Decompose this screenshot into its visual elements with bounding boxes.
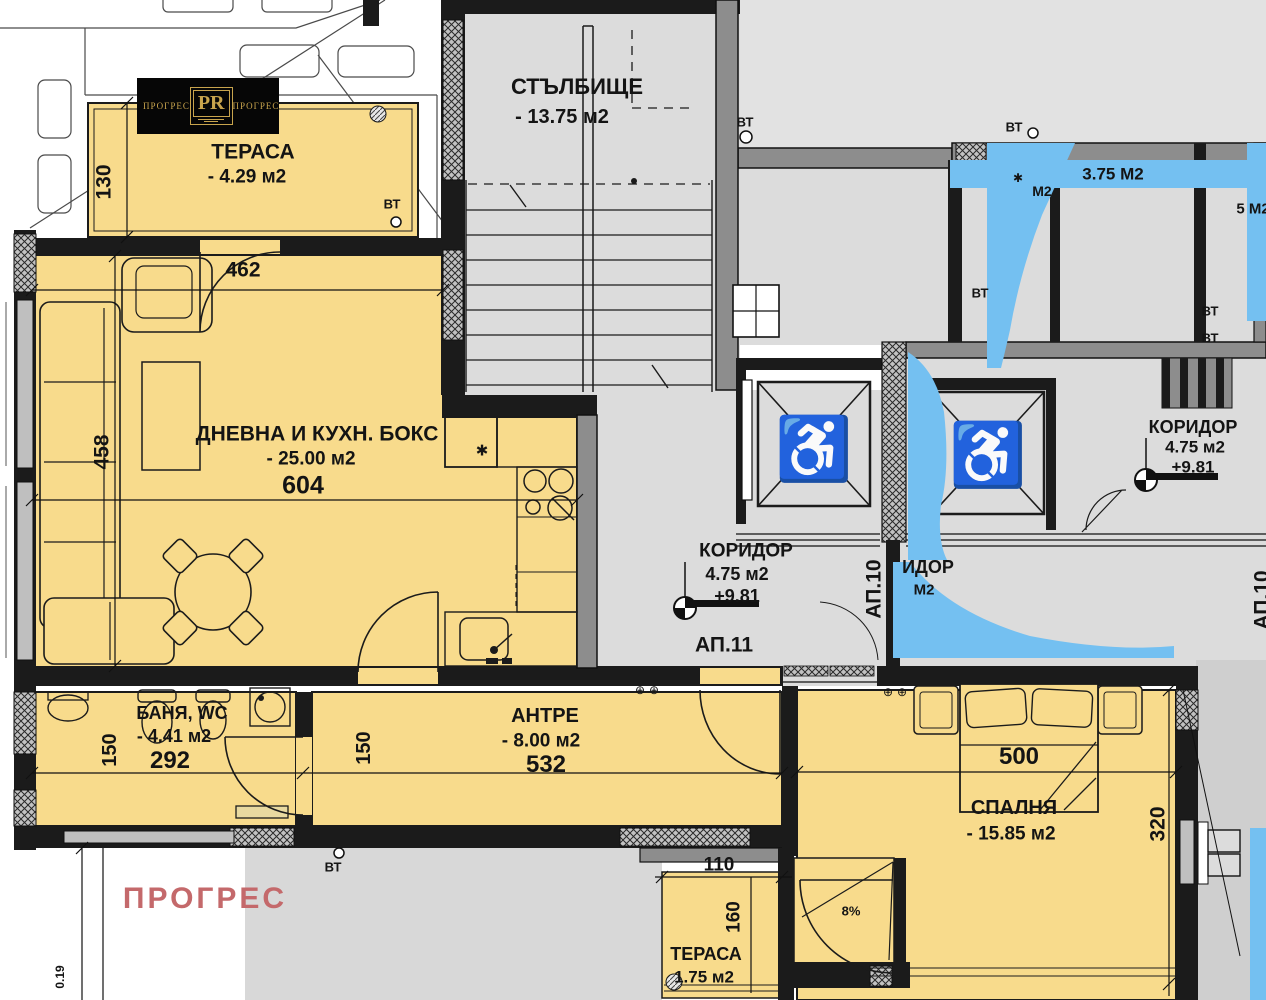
apartment-label-ap10-right: АП.10 [1252, 570, 1266, 629]
dim-150-left: 150 [100, 733, 120, 766]
dim-130: 130 [94, 164, 115, 199]
outdoor-top-right [740, 0, 1266, 148]
dim-110: 110 [704, 856, 735, 875]
door-pivot-icon: ⊕ [649, 684, 659, 696]
area-label-staircase: - 13.75 м2 [515, 107, 609, 127]
vt-label-1: ВТ [737, 116, 754, 129]
dim-292: 292 [150, 749, 190, 773]
dim-320: 320 [1148, 806, 1169, 841]
logo-brand-right: ПРОГРЕС [233, 101, 280, 111]
dim-019: 0.19 [54, 965, 66, 988]
room-label-staircase: СТЪЛБИЩЕ [511, 76, 643, 98]
vt-label-7: ВТ [325, 861, 342, 874]
slope-label: 8% [842, 905, 861, 918]
area-label-terrace-bottom: 1.75 м2 [674, 969, 734, 986]
room-label-bedroom: СПАЛНЯ [971, 798, 1057, 818]
partial-area-label: 3.75 М2 [1082, 166, 1143, 183]
area-label-corridor-mid: 4.75 м2 [705, 565, 768, 583]
area-label-corridor-right: 4.75 м2 [1165, 439, 1225, 456]
door-pivot-icon: ⊕ [883, 686, 893, 698]
apartment-label-ap11: АП.11 [695, 635, 753, 656]
vt-label-3: ВТ [384, 198, 401, 211]
dim-462: 462 [225, 260, 260, 281]
vt-label-2: ВТ [1006, 121, 1023, 134]
room-label-terrace-bottom: ТЕРАСА [670, 945, 742, 963]
partial-m2-right-label: 5 М2 [1236, 202, 1266, 217]
logo-brand-left: ПРОГРЕС [143, 101, 190, 111]
watermark-text: ПРОГРЕС [123, 882, 287, 916]
dim-604: 604 [282, 474, 324, 499]
area-label-terrace-top: - 4.29 м2 [208, 168, 287, 187]
partial-m2-label: М2 [1032, 184, 1051, 198]
partial-m2-mid-label: М2 [914, 583, 935, 598]
wheelchair-icon: ♿ [775, 419, 852, 481]
door-pivot-icon: ⊕ [635, 684, 645, 696]
dim-500: 500 [999, 745, 1039, 769]
dim-160: 160 [725, 901, 744, 933]
logo-tagline-rule [198, 119, 224, 120]
room-label-terrace-top: ТЕРАСА [211, 142, 294, 163]
kitchen-star-icon: ✱ [476, 444, 489, 459]
area-label-bath: - 4.41 м2 [137, 727, 211, 745]
room-label-corridor-right: КОРИДОР [1149, 418, 1238, 436]
area-label-antre: - 8.00 м2 [502, 732, 581, 751]
vt-label-4: ВТ [972, 287, 989, 300]
apartment-label-ap10: АП.10 [864, 559, 885, 618]
vt-label-6: ВТ [1202, 332, 1219, 345]
room-label-corridor-mid: КОРИДОР [699, 542, 793, 561]
room-label-bath: БАНЯ, WC [136, 704, 227, 722]
partial-coridor-label: ИДОР [902, 558, 954, 576]
level-label-corridor-right: +9.81 [1171, 459, 1214, 476]
door-pivot-icon: ⊕ [897, 686, 907, 698]
logo-tagline-rule-2 [204, 121, 218, 122]
area-label-bedroom: - 15.85 м2 [966, 825, 1055, 844]
wheelchair-icon: ♿ [949, 425, 1026, 487]
agency-logo: ПРОГРЕС PR ПРОГРЕС [137, 78, 279, 134]
logo-monogram: PR [193, 90, 230, 117]
level-label-corridor-mid: +9.81 [714, 587, 760, 605]
floorplan-drawing [0, 0, 1266, 1000]
floorplan-page: ПРОГРЕС PR ПРОГРЕС ТЕРАСА - 4.29 м2 130 … [0, 0, 1266, 1000]
vent-star-icon: ✱ [1013, 172, 1023, 184]
area-label-living: - 25.00 м2 [266, 450, 355, 469]
dim-150-mid: 150 [354, 731, 374, 764]
room-label-living: ДНЕВНА И КУХН. БОКС [196, 424, 439, 445]
vt-label-5: ВТ [1202, 305, 1219, 318]
logo-monogram-box: PR [190, 87, 233, 125]
room-label-antre: АНТРЕ [511, 706, 579, 726]
dim-532: 532 [526, 753, 566, 777]
dim-458: 458 [92, 434, 113, 469]
